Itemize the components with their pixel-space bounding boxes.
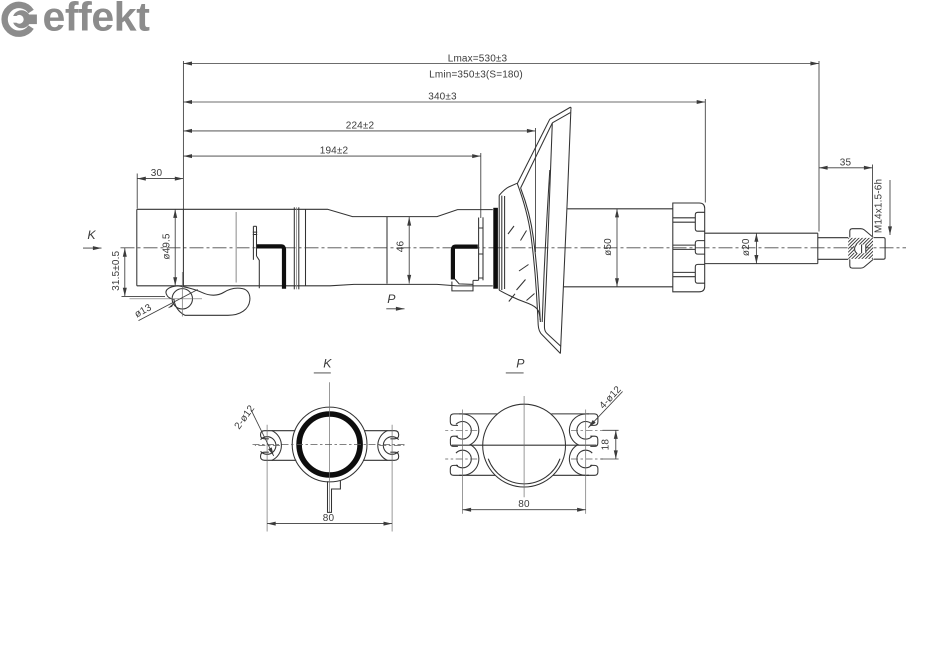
svg-text:K: K: [323, 357, 332, 371]
svg-text:ø50: ø50: [603, 238, 614, 256]
svg-text:M14x1.5-6h: M14x1.5-6h: [874, 179, 885, 233]
svg-text:194±2: 194±2: [320, 146, 349, 157]
svg-text:ø20: ø20: [741, 238, 752, 256]
svg-text:effekt: effekt: [43, 0, 151, 40]
svg-text:K: K: [87, 228, 96, 242]
svg-text:Lmin=350±3(S=180): Lmin=350±3(S=180): [429, 70, 523, 81]
svg-text:P: P: [516, 357, 525, 371]
svg-text:224±2: 224±2: [346, 121, 375, 132]
svg-text:31.5±0.5: 31.5±0.5: [111, 250, 122, 290]
svg-text:Lmax=530±3: Lmax=530±3: [448, 54, 508, 65]
svg-text:46: 46: [396, 241, 407, 253]
svg-text:ø49.5: ø49.5: [161, 233, 172, 260]
svg-text:340±3: 340±3: [428, 92, 457, 103]
svg-text:30: 30: [151, 168, 163, 179]
svg-text:35: 35: [840, 157, 852, 168]
svg-text:P: P: [387, 292, 396, 306]
svg-text:18: 18: [601, 439, 612, 451]
svg-text:80: 80: [323, 513, 335, 524]
svg-text:80: 80: [518, 499, 530, 510]
